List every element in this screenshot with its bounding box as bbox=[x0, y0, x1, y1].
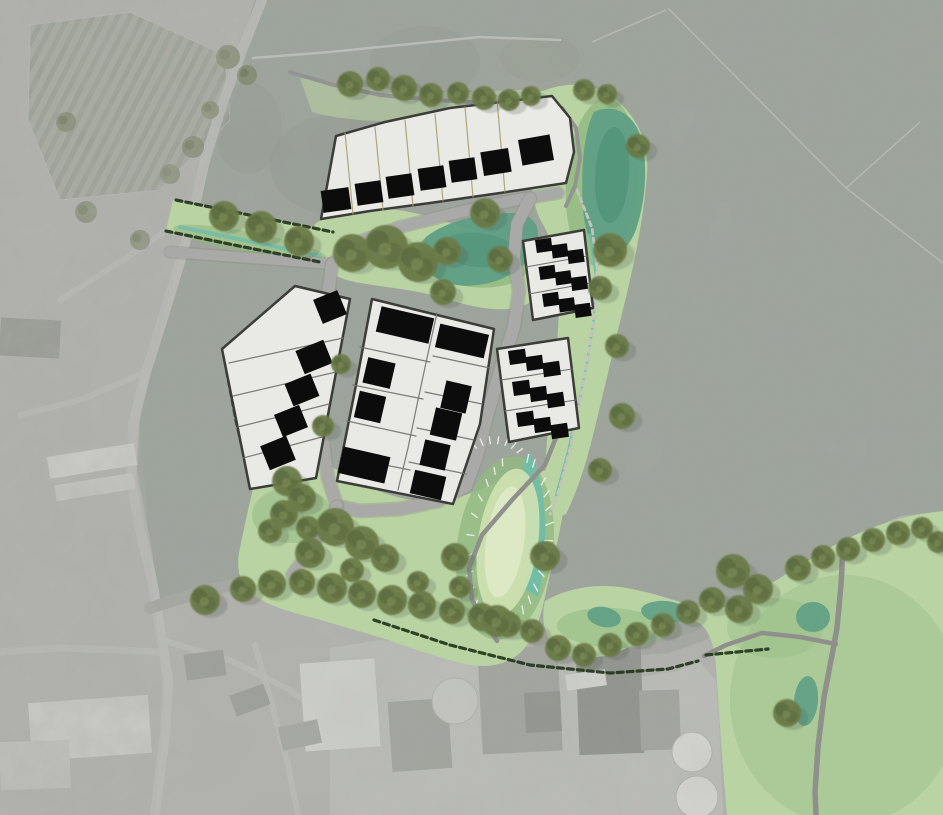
tree-canopy-highlight bbox=[255, 224, 265, 234]
north-row-building bbox=[449, 157, 478, 182]
tree-canopy-highlight bbox=[480, 96, 487, 103]
tree-canopy-highlight bbox=[348, 568, 355, 575]
north-row-building bbox=[386, 173, 415, 198]
tree-canopy-highlight bbox=[528, 94, 534, 100]
tree-canopy-highlight bbox=[450, 554, 458, 562]
tree-canopy-highlight bbox=[734, 606, 742, 614]
tree-canopy-highlight bbox=[438, 289, 446, 297]
tree-canopy-highlight bbox=[378, 243, 391, 256]
tree-canopy-highlight bbox=[869, 538, 876, 545]
tree-canopy-highlight bbox=[580, 88, 587, 95]
tree-canopy-highlight bbox=[495, 256, 503, 264]
north-row-building bbox=[321, 187, 352, 213]
north-row-building bbox=[418, 165, 447, 190]
masterplan bbox=[0, 0, 943, 815]
pond bbox=[796, 602, 830, 632]
tree-canopy-highlight bbox=[454, 91, 461, 98]
tree-canopy-highlight bbox=[380, 555, 388, 563]
tree-canopy-highlight bbox=[328, 523, 339, 534]
north-row-building bbox=[480, 148, 511, 176]
tree-canopy-highlight bbox=[356, 540, 366, 550]
tree-canopy-highlight bbox=[327, 585, 336, 594]
tree-canopy-highlight bbox=[456, 585, 463, 592]
tree-canopy-highlight bbox=[427, 93, 434, 100]
tree-canopy-highlight bbox=[580, 653, 587, 660]
tree-canopy-highlight bbox=[782, 710, 790, 718]
tree-canopy-highlight bbox=[918, 526, 925, 533]
tree-canopy-highlight bbox=[844, 547, 851, 554]
tree-canopy-highlight bbox=[279, 511, 287, 519]
tree-canopy-highlight bbox=[297, 495, 305, 503]
tree-canopy-highlight bbox=[934, 540, 941, 547]
tree-canopy-highlight bbox=[528, 629, 535, 636]
tree-canopy-highlight bbox=[604, 247, 614, 257]
tree-canopy-highlight bbox=[357, 591, 365, 599]
tree-canopy-highlight bbox=[282, 478, 291, 487]
tree-canopy-highlight bbox=[707, 597, 715, 605]
tree-canopy-highlight bbox=[319, 424, 326, 431]
tree-canopy-highlight bbox=[399, 85, 407, 93]
north-row-building bbox=[518, 134, 554, 165]
tree-canopy-highlight bbox=[297, 579, 305, 587]
tree-canopy-highlight bbox=[200, 597, 209, 606]
tree-canopy-highlight bbox=[480, 210, 489, 219]
tree-canopy-highlight bbox=[793, 565, 801, 573]
tree-canopy-highlight bbox=[294, 238, 303, 247]
masterplan-svg bbox=[0, 0, 943, 815]
tree-canopy-highlight bbox=[505, 98, 512, 105]
tree-canopy-highlight bbox=[414, 580, 421, 587]
tree-canopy-highlight bbox=[417, 602, 425, 610]
tree-canopy-highlight bbox=[819, 555, 826, 562]
tree-canopy-highlight bbox=[606, 643, 613, 650]
tree-canopy-highlight bbox=[345, 249, 356, 260]
tree-canopy-highlight bbox=[387, 597, 396, 606]
tree-canopy-highlight bbox=[266, 529, 273, 536]
tree-canopy-highlight bbox=[345, 81, 353, 89]
tree-canopy-highlight bbox=[659, 623, 666, 630]
tree-canopy-highlight bbox=[613, 344, 620, 351]
tree-canopy-highlight bbox=[447, 608, 455, 616]
tree-canopy-highlight bbox=[753, 586, 762, 595]
tree-canopy-highlight bbox=[617, 413, 625, 421]
tree-canopy-highlight bbox=[634, 144, 641, 151]
tree-canopy-highlight bbox=[374, 77, 381, 84]
tree-canopy-highlight bbox=[411, 258, 423, 270]
tree-canopy-highlight bbox=[684, 610, 691, 617]
north-row-building bbox=[355, 180, 384, 205]
tree-canopy-highlight bbox=[604, 92, 610, 98]
tree-canopy-highlight bbox=[338, 362, 344, 368]
tree-canopy-highlight bbox=[305, 550, 314, 559]
tree-canopy-highlight bbox=[596, 468, 603, 475]
tree-canopy-highlight bbox=[304, 526, 311, 533]
tree-canopy-highlight bbox=[633, 632, 640, 639]
tree-canopy-highlight bbox=[553, 645, 561, 653]
tree-canopy-highlight bbox=[727, 568, 737, 578]
tree-canopy-highlight bbox=[491, 618, 501, 628]
tree-canopy-highlight bbox=[238, 586, 246, 594]
tree-canopy-highlight bbox=[540, 553, 549, 562]
tree-canopy-highlight bbox=[596, 286, 603, 293]
tree-canopy-highlight bbox=[442, 248, 450, 256]
tree-canopy-highlight bbox=[894, 531, 901, 538]
tree-canopy-highlight bbox=[267, 581, 275, 589]
tree-canopy-highlight bbox=[219, 213, 228, 222]
